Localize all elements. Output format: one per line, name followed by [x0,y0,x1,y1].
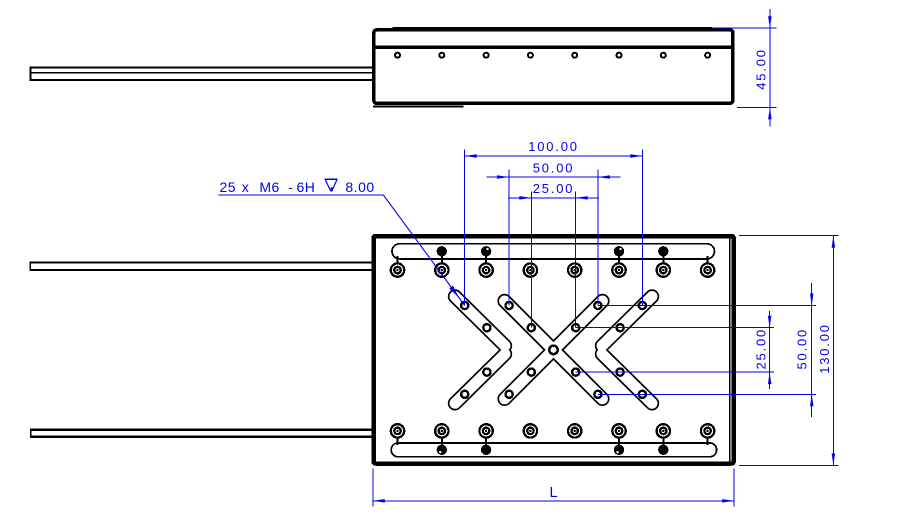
svg-text:100.00: 100.00 [528,139,579,154]
svg-text:50.00: 50.00 [533,160,575,175]
svg-text:25: 25 [220,179,237,195]
svg-text:-: - [288,179,293,195]
svg-text:50.00: 50.00 [795,328,810,370]
svg-text:8.00: 8.00 [345,179,374,195]
svg-text:130.00: 130.00 [817,323,832,374]
svg-text:25.00: 25.00 [533,181,575,196]
svg-text:M6: M6 [259,179,279,195]
svg-text:x: x [242,179,250,195]
svg-text:45.00: 45.00 [753,48,768,90]
svg-text:L: L [549,485,557,501]
svg-text:6H: 6H [297,179,316,195]
svg-text:25.00: 25.00 [753,328,768,370]
